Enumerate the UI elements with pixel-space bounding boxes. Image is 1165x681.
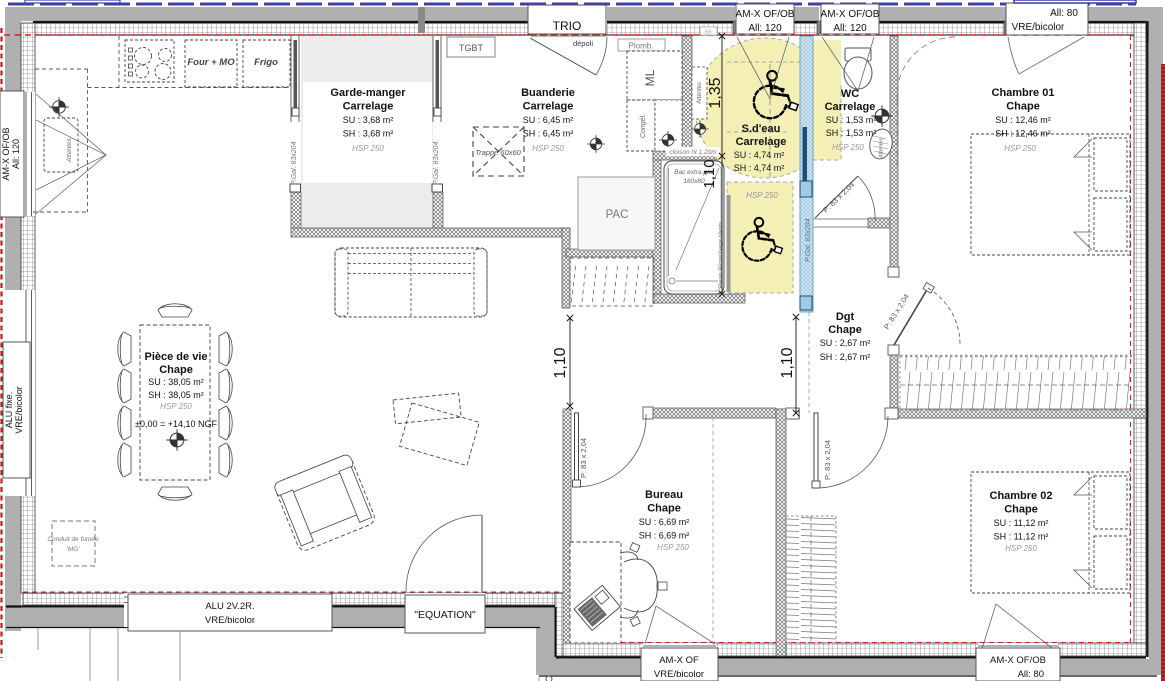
svg-text:SH : 1,53 m²: SH : 1,53 m² (826, 128, 877, 138)
svg-text:Chape: Chape (159, 364, 193, 376)
svg-text:WC: WC (841, 88, 859, 100)
svg-text:All: 80: All: 80 (1018, 669, 1044, 680)
svg-text:SH : 6,45 m²: SH : 6,45 m² (523, 129, 574, 139)
svg-text:±0,00 = +14,10 NGF: ±0,00 = +14,10 NGF (135, 419, 217, 429)
svg-text:Garde-manger: Garde-manger (330, 87, 406, 99)
svg-text:Buanderie: Buanderie (521, 87, 575, 99)
svg-text:1,10: 1,10 (779, 347, 796, 378)
svg-text:HSP 250: HSP 250 (1005, 544, 1037, 553)
svg-text:Chape: Chape (1004, 504, 1038, 516)
svg-text:Plomb.: Plomb. (629, 42, 654, 51)
svg-text:Trappe 60x60: Trappe 60x60 (475, 148, 522, 157)
svg-text:SH : 38,05 m²: SH : 38,05 m² (148, 390, 204, 400)
svg-text:SH : 6,69 m²: SH : 6,69 m² (639, 531, 690, 541)
svg-text:Carrelage: Carrelage (523, 101, 574, 113)
svg-text:1,10: 1,10 (701, 159, 718, 188)
svg-text:SH : 3,68 m²: SH : 3,68 m² (343, 129, 394, 139)
svg-text:HSP 250: HSP 250 (532, 144, 564, 153)
svg-text:SH : 2,67 m²: SH : 2,67 m² (820, 352, 871, 362)
svg-text:ALU 2V.2R.: ALU 2V.2R. (205, 601, 254, 612)
svg-text:SU : 6,69 m²: SU : 6,69 m² (639, 517, 690, 527)
svg-text:VRE/bicolor: VRE/bicolor (1012, 22, 1065, 33)
svg-text:SU : 12,46 m²: SU : 12,46 m² (995, 115, 1051, 125)
svg-text:Chape: Chape (1006, 101, 1040, 113)
svg-text:1,10: 1,10 (552, 347, 569, 378)
svg-text:AM-X OF/OB: AM-X OF/OB (736, 9, 795, 20)
svg-text:Congél.: Congél. (640, 114, 647, 138)
svg-text:VRE/bicolor: VRE/bicolor (654, 669, 704, 680)
svg-text:PAC: PAC (606, 209, 629, 221)
svg-text:Frigo: Frigo (254, 57, 278, 68)
svg-text:SU : 4,74 m²: SU : 4,74 m² (734, 150, 785, 160)
svg-text:dépoli: dépoli (573, 39, 593, 48)
svg-text:All: 120: All: 120 (833, 23, 867, 34)
svg-text:SH : 11,12 m²: SH : 11,12 m² (994, 532, 1049, 542)
svg-text:ALU fixe.: ALU fixe. (4, 392, 14, 429)
svg-text:Attentes: Attentes (66, 137, 73, 163)
svg-text:Attentes: Attentes (879, 138, 885, 159)
svg-text:HSP 250: HSP 250 (1004, 144, 1036, 153)
svg-text:AM-X OF/OB: AM-X OF/OB (990, 655, 1046, 666)
svg-text:AM-X OF/OB: AM-X OF/OB (821, 9, 880, 20)
svg-text:Chambre 02: Chambre 02 (990, 490, 1053, 502)
svg-text:SU : 2,67 m²: SU : 2,67 m² (820, 338, 871, 348)
svg-text:"EQUATION": "EQUATION" (414, 609, 476, 621)
svg-text:AM-X OF/OB: AM-X OF/OB (1, 127, 11, 180)
svg-text:SU : 38,05 m²: SU : 38,05 m² (148, 377, 204, 387)
svg-text:ML: ML (643, 69, 657, 86)
svg-text:P: 83 x 2,04: P: 83 x 2,04 (579, 438, 588, 478)
svg-text:Pièce de vie: Pièce de vie (145, 351, 208, 363)
svg-text:HSP 250: HSP 250 (746, 191, 778, 200)
svg-text:HSP 250: HSP 250 (832, 143, 864, 152)
svg-text:SU : 11,12 m²: SU : 11,12 m² (994, 518, 1049, 528)
svg-text:VRE/bicolor: VRE/bicolor (205, 615, 255, 626)
svg-text:SU : 6,45 m²: SU : 6,45 m² (523, 115, 574, 125)
svg-text:SH : 12,46 m²: SH : 12,46 m² (995, 129, 1051, 139)
svg-text:1,35: 1,35 (707, 77, 724, 108)
svg-text:Parois 90cm/charge clients: Parois 90cm/charge clients (718, 222, 724, 288)
svg-text:Attentes: Attentes (697, 82, 703, 105)
svg-text:P.Gal. 83x204: P.Gal. 83x204 (291, 141, 298, 185)
svg-text:Bureau: Bureau (645, 489, 683, 501)
svg-text:Dgt: Dgt (836, 311, 855, 323)
svg-text:SS: SS (704, 30, 712, 36)
svg-text:Chape: Chape (828, 324, 862, 336)
svg-text:Conduit de fumée: Conduit de fumée (47, 536, 99, 543)
svg-text:SU : 1,53 m²: SU : 1,53 m² (826, 115, 877, 125)
svg-text:HSP 250: HSP 250 (160, 402, 192, 411)
svg-text:Carrelage: Carrelage (825, 101, 876, 113)
svg-text:cloison ht 1,20m: cloison ht 1,20m (669, 149, 717, 156)
svg-text:Chape: Chape (647, 503, 681, 515)
svg-text:SH : 4,74 m²: SH : 4,74 m² (734, 163, 785, 173)
svg-text:Carrelage: Carrelage (736, 136, 787, 148)
svg-text:S.d'eau: S.d'eau (742, 123, 781, 135)
svg-text:SU : 3,68 m²: SU : 3,68 m² (343, 115, 394, 125)
svg-text:P.Gal. 83x204: P.Gal. 83x204 (433, 141, 440, 185)
svg-text:Carrelage: Carrelage (343, 101, 394, 113)
svg-text:All: 120: All: 120 (11, 139, 21, 169)
svg-text:HSP 250: HSP 250 (657, 543, 689, 552)
svg-text:All: 120: All: 120 (748, 23, 782, 34)
svg-text:'MG': 'MG' (67, 546, 81, 553)
svg-text:VRE/bicolor: VRE/bicolor (14, 386, 24, 434)
svg-text:Four + MO: Four + MO (187, 57, 235, 68)
svg-text:Chambre 01: Chambre 01 (992, 87, 1055, 99)
svg-text:All: 80: All: 80 (1050, 8, 1078, 19)
svg-text:TRIO: TRIO (553, 19, 582, 33)
svg-text:TGBT: TGBT (459, 43, 484, 53)
svg-text:P: 83 x 2,04: P: 83 x 2,04 (823, 440, 832, 480)
svg-text:AM-X OF: AM-X OF (659, 655, 699, 666)
svg-text:P.Gal. 83x204: P.Gal. 83x204 (805, 218, 812, 262)
svg-text:HSP 250: HSP 250 (352, 144, 384, 153)
